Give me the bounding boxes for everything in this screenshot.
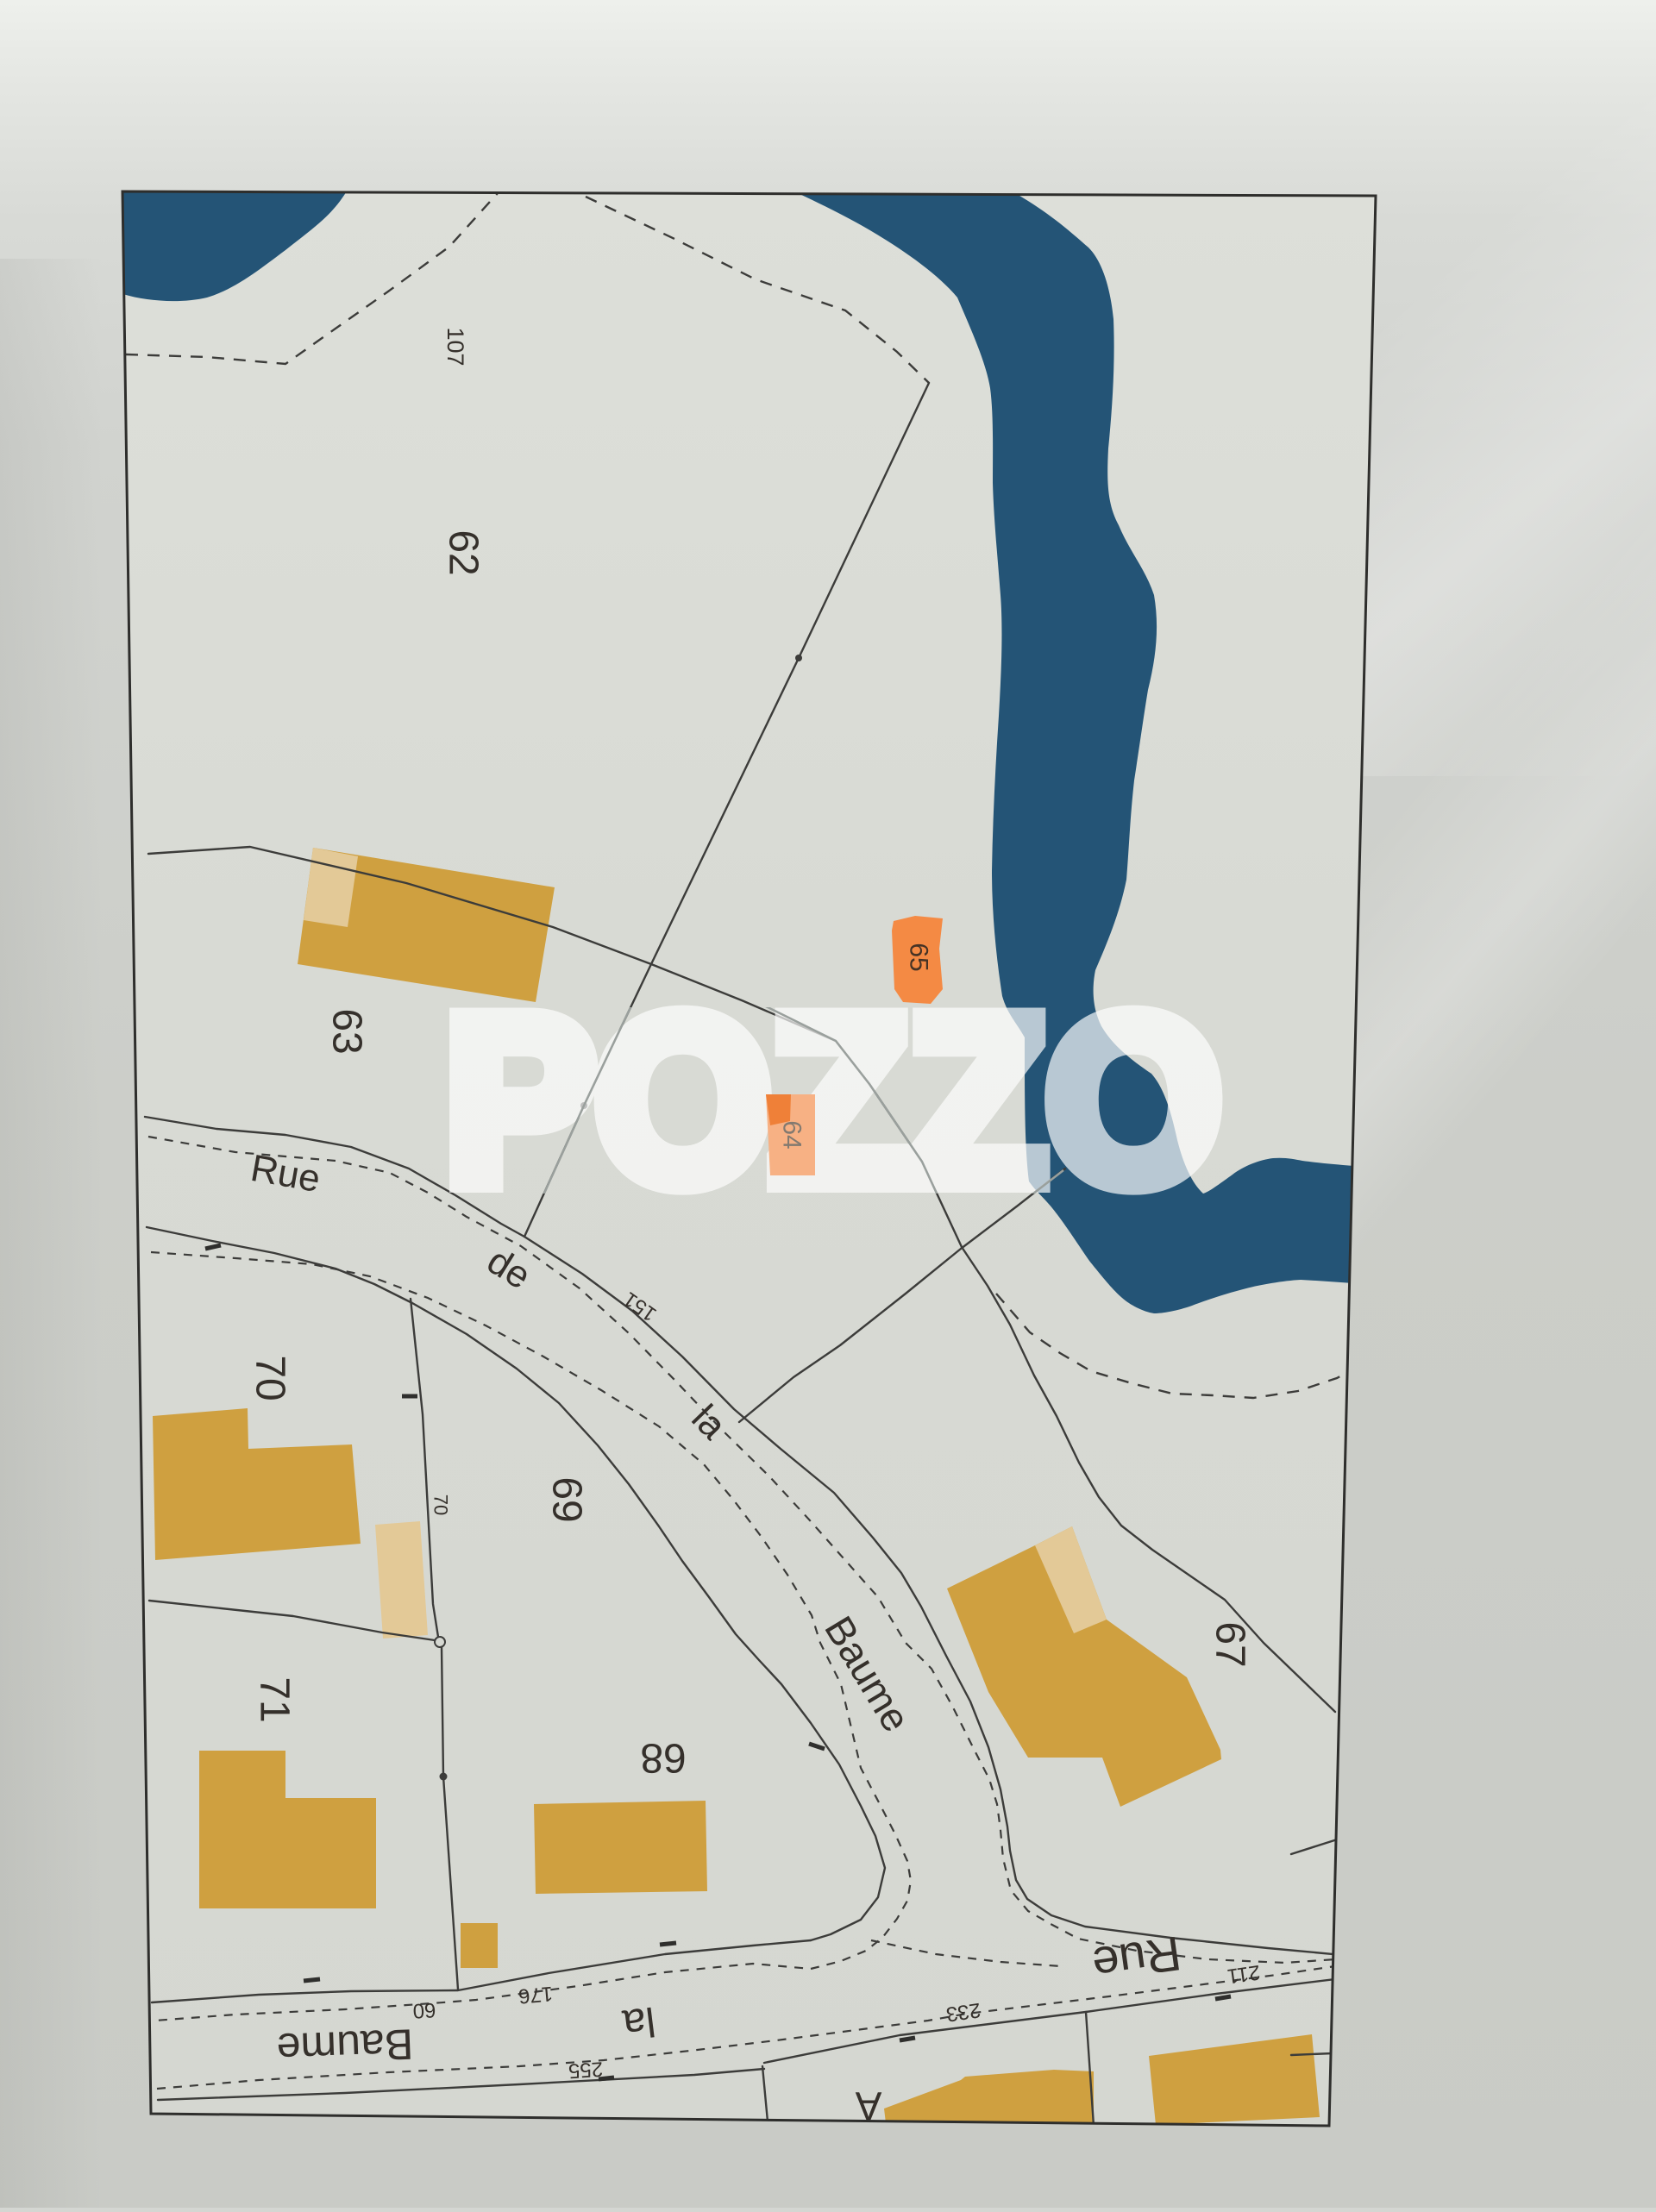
svg-text:233: 233: [944, 1998, 982, 2026]
svg-text:255: 255: [568, 2057, 604, 2083]
svg-text:68: 68: [640, 1735, 686, 1781]
svg-text:la: la: [620, 1997, 658, 2046]
svg-text:69: 69: [544, 1476, 590, 1522]
svg-text:67: 67: [1207, 1621, 1253, 1667]
svg-text:65: 65: [905, 943, 933, 971]
svg-text:62: 62: [441, 530, 486, 575]
svg-text:POZZO: POZZO: [445, 968, 1221, 1232]
svg-text:64: 64: [778, 1120, 806, 1149]
svg-text:60: 60: [412, 1998, 436, 2022]
svg-text:107: 107: [442, 327, 468, 366]
svg-text:Baume: Baume: [276, 2020, 414, 2072]
svg-text:63: 63: [324, 1008, 370, 1054]
svg-text:211: 211: [1226, 1960, 1262, 1988]
svg-text:70: 70: [430, 1495, 452, 1515]
svg-text:70: 70: [248, 1355, 293, 1401]
svg-text:176: 176: [517, 1982, 554, 2008]
svg-text:71: 71: [252, 1676, 298, 1722]
